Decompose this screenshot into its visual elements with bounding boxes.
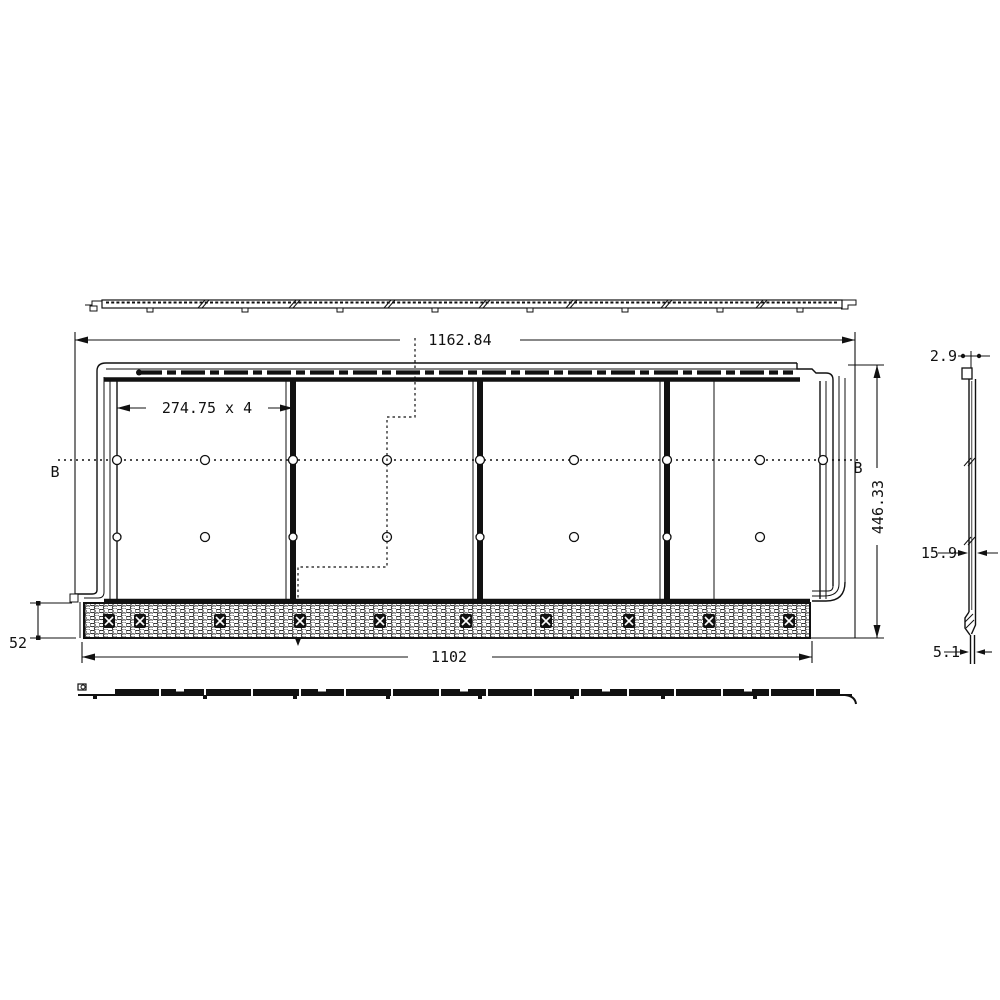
base-width-label: 1102 bbox=[431, 648, 467, 666]
base-height-label: 52 bbox=[9, 634, 27, 652]
overall-height-label: 446.33 bbox=[869, 480, 887, 534]
overall-width-label: 1162.84 bbox=[428, 331, 491, 349]
bottom-left-step-tab bbox=[70, 594, 78, 602]
mounting-strip bbox=[84, 603, 884, 638]
section-label-right: B bbox=[853, 459, 862, 477]
top-thickness-label: 2.9 bbox=[930, 347, 957, 365]
left-end-tab bbox=[90, 306, 97, 311]
sheet-background bbox=[0, 0, 1000, 1000]
module-pitch-label: 274.75 x 4 bbox=[162, 399, 252, 417]
section-label-left: B bbox=[50, 463, 59, 481]
engineering-drawing: 1162.84 bbox=[0, 0, 1000, 1000]
